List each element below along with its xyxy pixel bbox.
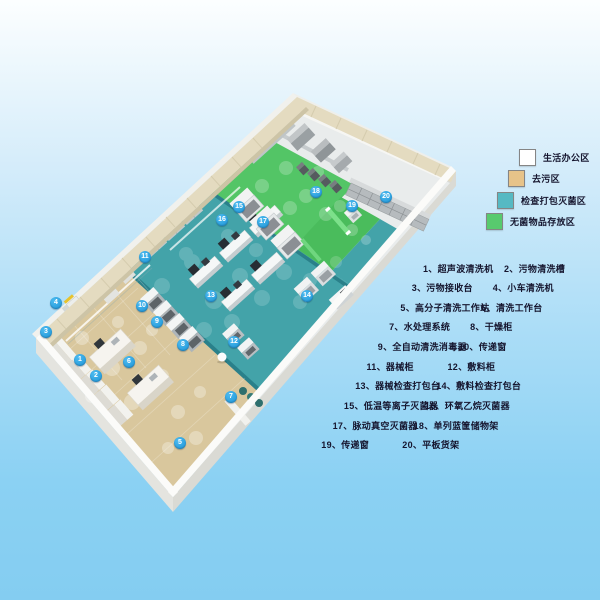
- equipment-item: 1、超声波清洗机: [423, 263, 493, 275]
- equipment-item: 6、清洗工作台: [481, 302, 542, 314]
- equipment-item: 12、敷料柜: [448, 361, 496, 373]
- equipment-item: 20、平板货架: [402, 439, 459, 451]
- equipment-item: 14、敷料检查打包台: [436, 380, 521, 392]
- equipment-item: 17、脉动真空灭菌器: [333, 420, 418, 432]
- equipment-item: 9、全自动清洗消毒器: [378, 341, 467, 353]
- equipment-item: 4、小车清洗机: [493, 282, 554, 294]
- equipment-item: 2、污物清洗槽: [504, 263, 565, 275]
- equipment-list: 1、超声波清洗机2、污物清洗槽3、污物接收台4、小车清洗机5、高分子清洗工作站6…: [0, 0, 600, 600]
- equipment-item: 13、器械检查打包台: [355, 380, 440, 392]
- equipment-item: 10、传递窗: [459, 341, 507, 353]
- equipment-item: 19、传递窗: [321, 439, 369, 451]
- equipment-item: 18、单列蓝筐储物架: [414, 420, 499, 432]
- equipment-item: 5、高分子清洗工作站: [400, 302, 489, 314]
- equipment-item: 16、环氧乙烷灭菌器: [425, 400, 510, 412]
- equipment-item: 11、器械柜: [367, 361, 414, 373]
- scene: 1234567891011121314151617181920 生活办公区 去污…: [0, 0, 600, 600]
- equipment-item: 3、污物接收台: [412, 282, 473, 294]
- equipment-item: 7、水处理系统: [389, 321, 450, 333]
- equipment-item: 8、干燥柜: [470, 321, 513, 333]
